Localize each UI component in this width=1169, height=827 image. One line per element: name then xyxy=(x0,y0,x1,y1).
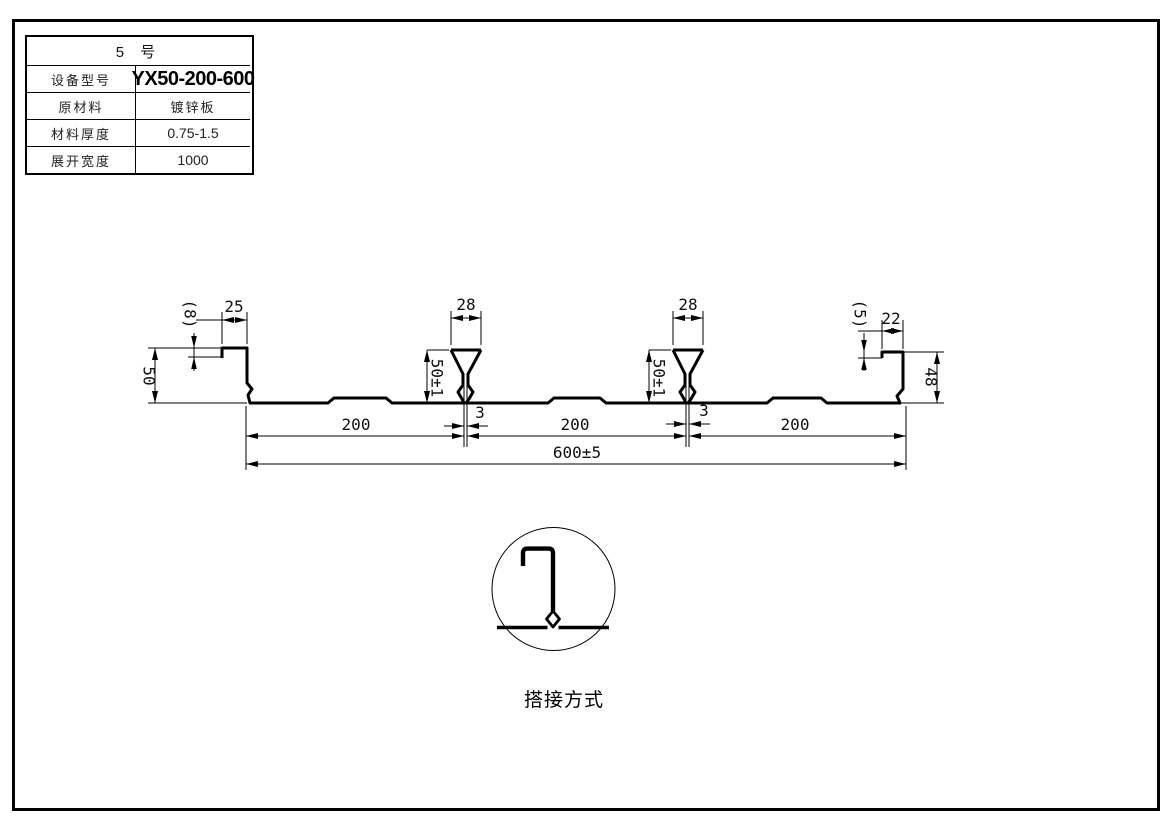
dim-right-height-label: 48 xyxy=(922,367,941,386)
detail-hook xyxy=(523,549,553,611)
dim-rib1-gap-3: 3 xyxy=(444,403,488,426)
dim-left-height-label: 50 xyxy=(140,366,159,385)
rib-1 xyxy=(451,350,481,403)
dim-rib1-height-label: 50±1 xyxy=(428,359,447,398)
dim-rib1-gap-label: 3 xyxy=(475,403,485,422)
dim-pitch2-label: 200 xyxy=(561,415,590,434)
dim-rib1-height: 50±1 xyxy=(427,350,449,403)
dim-rib1-width-28: 28 xyxy=(451,295,481,345)
dim-rib2-gap-label: 3 xyxy=(699,401,709,420)
arrowhead xyxy=(861,340,867,352)
dim-right-height-48: 48 xyxy=(900,352,944,403)
profile-outline xyxy=(222,348,903,403)
rib-2 xyxy=(673,350,703,403)
dim-bottom: 200 200 200 600±5 xyxy=(246,406,906,470)
dim-rib2-width-label: 28 xyxy=(678,295,697,314)
profile-main-path xyxy=(222,348,903,403)
dim-left-lip-8: (8) xyxy=(181,300,223,371)
dim-right-lip-label: (5) xyxy=(851,300,870,329)
dim-rib2-height-label: 50±1 xyxy=(650,359,669,398)
rib1-right xyxy=(466,350,481,403)
drawing-sheet: 5 号 设备型号 YX50-200-600 原材料 镀锌板 材料厚度 0.75-… xyxy=(0,0,1169,827)
dim-rib2-width-28: 28 xyxy=(673,295,703,345)
dim-left-flange-25: 25 xyxy=(196,297,247,344)
dim-right-flange-label: 22 xyxy=(881,309,900,328)
arrowhead xyxy=(191,336,197,348)
dim-rib1-width-label: 28 xyxy=(456,295,475,314)
arrowhead xyxy=(191,357,197,369)
lap-joint-caption: 搭接方式 xyxy=(489,685,639,712)
lap-joint-detail xyxy=(492,528,615,651)
dim-right-lip-5: (5) xyxy=(851,300,883,371)
dim-pitch3-label: 200 xyxy=(781,415,810,434)
rib1-left xyxy=(451,350,464,403)
arrowhead xyxy=(861,358,867,370)
dim-overall-label: 600±5 xyxy=(553,443,601,462)
dim-left-height-50: 50 xyxy=(140,348,248,403)
dim-rib2-height: 50±1 xyxy=(649,350,671,403)
rib2-left xyxy=(673,350,686,403)
dim-left-flange-label: 25 xyxy=(224,297,243,316)
dim-pitch1-label: 200 xyxy=(342,415,371,434)
dim-left-lip-label: (8) xyxy=(181,300,200,329)
detail-interlock-diamond xyxy=(547,611,560,627)
rib2-right xyxy=(688,350,703,403)
